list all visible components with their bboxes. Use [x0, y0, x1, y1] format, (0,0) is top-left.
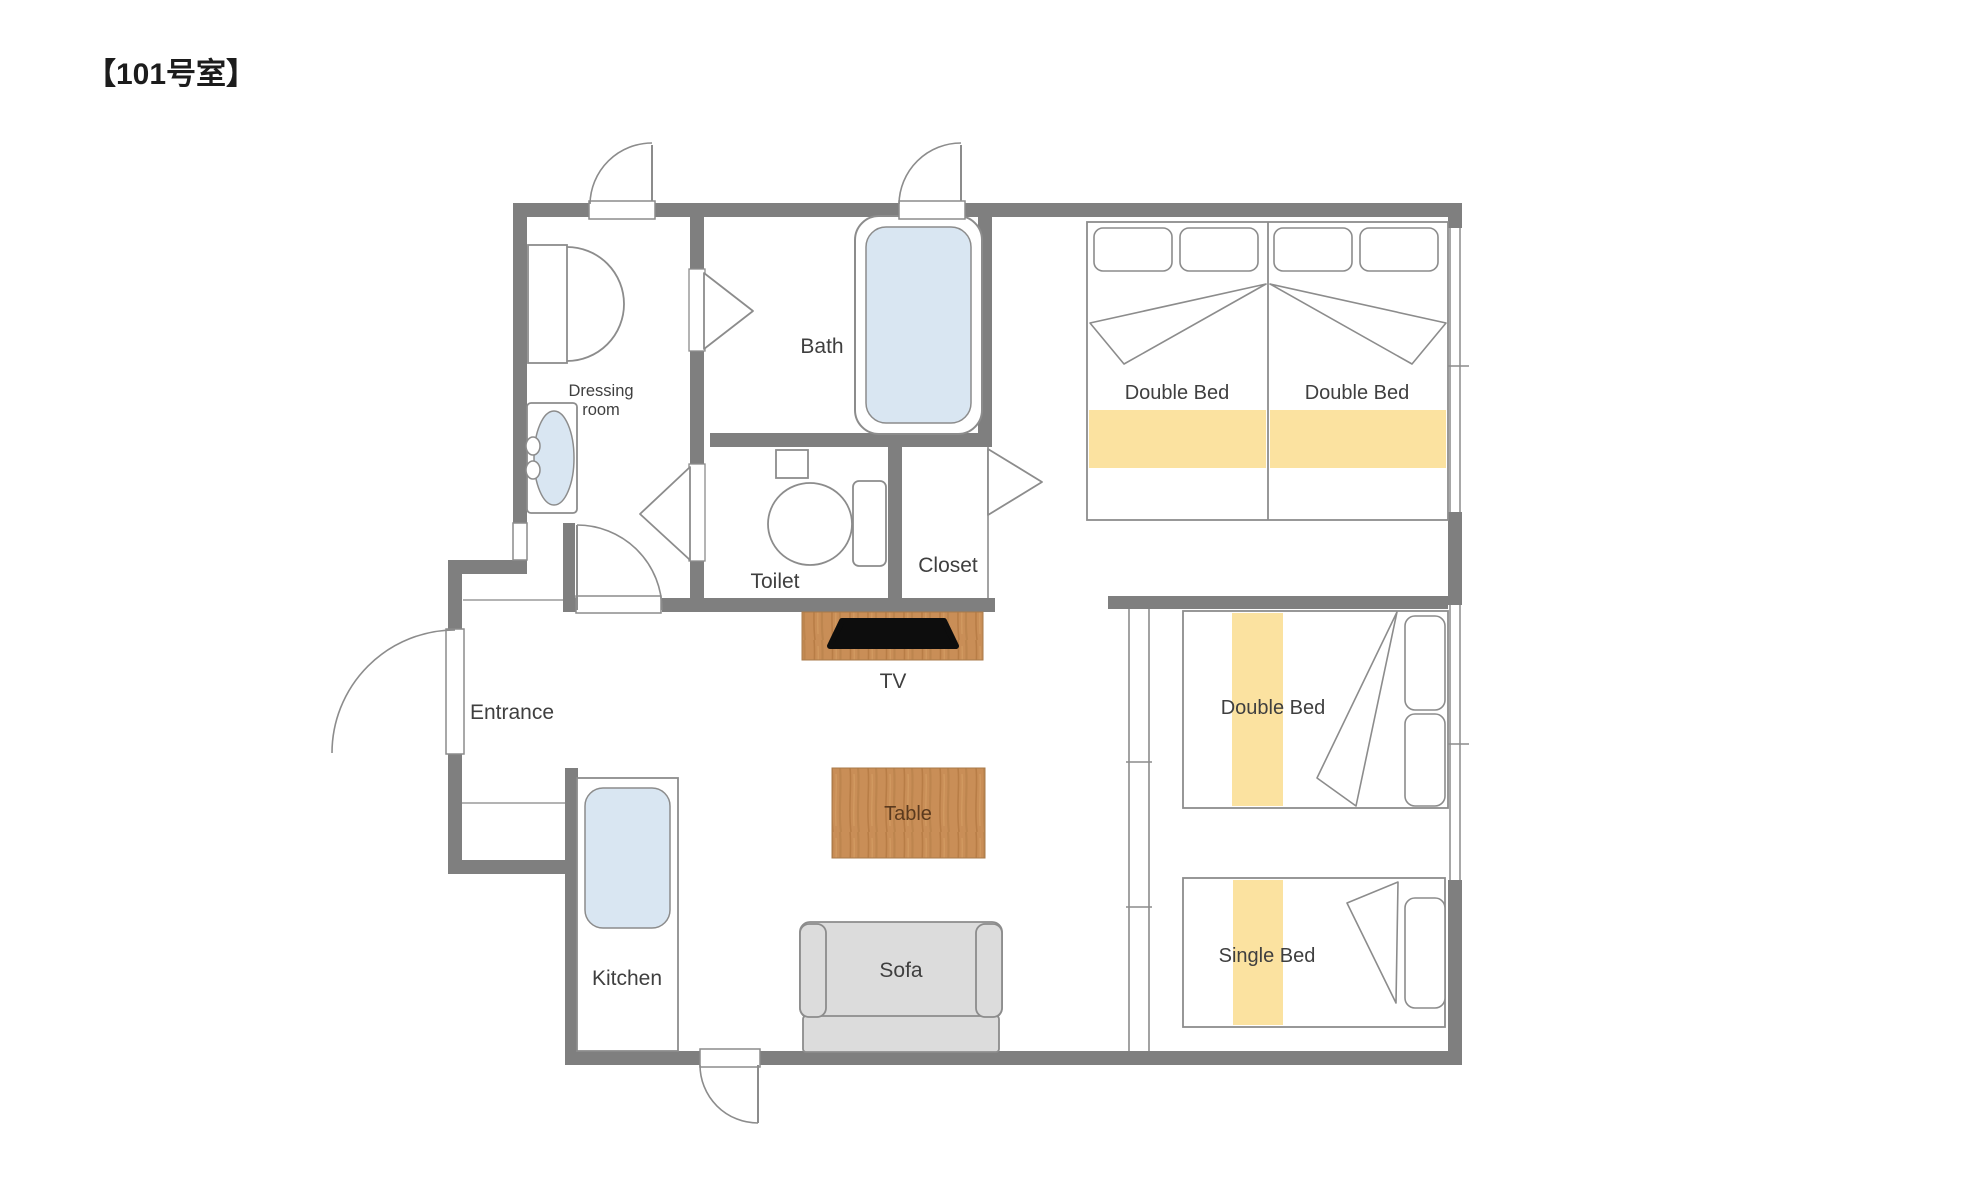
floorplan-page: 【101号室】: [0, 0, 1968, 1181]
door-arc-dressing-top: [590, 143, 652, 204]
sofa-front: [803, 1016, 999, 1052]
wall-bottom-right: [760, 1051, 1462, 1065]
bed-accent-top-left: [1089, 410, 1266, 468]
kitchen-unit: [577, 778, 678, 1051]
floorplan-canvas: 【101号室】: [0, 0, 1968, 1181]
page-title: 【101号室】: [86, 57, 256, 91]
door-sill-dressing-top: [589, 201, 655, 219]
wall-left-upper: [513, 203, 527, 523]
wall-kitchen-outer: [565, 768, 578, 1051]
wall-hall-top-right: [662, 598, 995, 612]
bathtub-basin: [866, 227, 971, 423]
label-bath: Bath: [800, 335, 843, 358]
door-sill-bath-top: [899, 201, 965, 219]
wardrobe-cabinet: [528, 245, 567, 363]
wardrobe-door-arc-bottom: [567, 304, 624, 361]
pillow: [1405, 616, 1445, 710]
wall-top-right: [963, 203, 1462, 217]
top-bedroom-beds: [1087, 222, 1448, 520]
label-kitchen: Kitchen: [592, 967, 662, 990]
label-dressing-room-line1: Dressing: [568, 382, 633, 400]
wall-hall-top-left: [563, 598, 577, 612]
toilet-flush-panel: [776, 450, 808, 478]
wash-basin: [526, 403, 577, 513]
wall-top-mid: [654, 203, 900, 217]
label-dressing-room-line2: room: [582, 401, 620, 419]
door-arc-bath-top: [899, 143, 961, 204]
label-entrance: Entrance: [470, 701, 554, 724]
wardrobe: [528, 245, 624, 363]
label-sofa: Sofa: [879, 959, 923, 982]
door-sill-hall-dressing: [576, 596, 661, 613]
toilet-bowl: [768, 483, 852, 565]
wall-alcove-bottom: [448, 860, 578, 874]
entrance-door-sill: [446, 629, 464, 754]
basin-faucet-2: [526, 461, 540, 479]
folding-door-top-bedroom: [988, 449, 1042, 515]
door-sill-dressing-side: [689, 464, 705, 561]
door-arc-living-bottom: [700, 1065, 758, 1123]
bathtub: [855, 216, 982, 434]
toilet-fixture: [768, 450, 886, 566]
entrance-door-arc: [332, 630, 455, 753]
wall-alcove-left-lower: [448, 753, 462, 860]
kitchen-sink: [585, 788, 670, 928]
label-double-bed-top-left: Double Bed: [1125, 382, 1230, 404]
wall-dressing-bath-1: [690, 217, 704, 270]
label-toilet: Toilet: [750, 570, 799, 593]
wall-closet-left: [888, 447, 902, 598]
sofa-armrest-left: [800, 924, 826, 1017]
sofa: [800, 922, 1002, 1052]
toilet-tank: [853, 481, 886, 566]
door-sill-bath-side: [689, 269, 705, 351]
wall-alcove-jog: [448, 560, 527, 574]
tv-screen: [830, 621, 956, 646]
wall-dressing-bath-3: [690, 560, 704, 612]
wall-alcove-left-upper: [448, 574, 462, 630]
sofa-armrest-right: [976, 924, 1002, 1017]
pillow: [1180, 228, 1258, 271]
basin-faucet-1: [526, 437, 540, 455]
window-left-wall: [513, 523, 527, 560]
label-double-bed-lower: Double Bed: [1221, 697, 1326, 719]
folding-door-dressing: [640, 467, 690, 560]
pillow: [1405, 898, 1445, 1008]
label-tv: TV: [880, 670, 907, 693]
pillow: [1094, 228, 1172, 271]
wall-bedroom2-top: [1108, 596, 1448, 609]
bed-accent-top-right: [1270, 410, 1446, 468]
sliding-door-track: [1128, 609, 1150, 1051]
wall-hall-stub: [563, 523, 575, 610]
pillow: [1405, 714, 1445, 806]
wall-dressing-bath-2: [690, 350, 704, 465]
wall-toilet-top: [710, 433, 992, 447]
folding-door-bath: [704, 273, 753, 349]
door-sill-living-bottom: [700, 1049, 760, 1067]
label-table: Table: [884, 803, 932, 825]
doors: [332, 143, 1152, 1123]
wardrobe-door-arc-top: [567, 247, 624, 304]
label-double-bed-top-right: Double Bed: [1305, 382, 1410, 404]
pillow: [1360, 228, 1438, 271]
label-single-bed: Single Bed: [1219, 945, 1316, 967]
label-closet: Closet: [918, 554, 978, 577]
basin-bowl: [534, 411, 574, 505]
tv-board: [802, 612, 983, 660]
wall-bottom-left: [565, 1051, 700, 1065]
pillow: [1274, 228, 1352, 271]
